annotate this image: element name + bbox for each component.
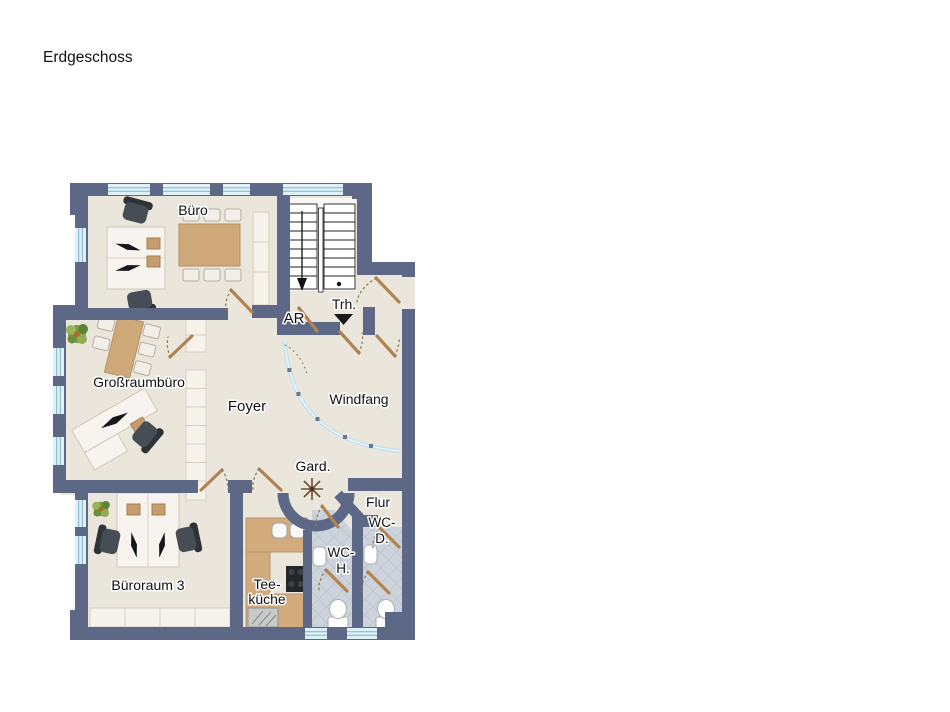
entrance-opening <box>402 277 415 309</box>
burner <box>298 569 304 575</box>
window <box>305 628 327 639</box>
room-label-flur: Flur <box>366 494 390 510</box>
room-label-teekueche-line1: Tee- <box>253 576 281 592</box>
floorplan-drawing: Erdgeschoss Büro Trh. AR Großraumbüro Fo… <box>0 0 950 712</box>
wall-right <box>402 262 415 640</box>
toilet <box>328 600 348 630</box>
chair <box>225 269 241 281</box>
page-title: Erdgeschoss <box>43 49 133 66</box>
window <box>75 536 86 564</box>
room-label-wc-h-line1: WC- <box>328 545 355 560</box>
wall-wch-west <box>303 530 312 628</box>
room-label-wc-d-line1: WC- <box>369 515 396 530</box>
wall-foyer-south-pier <box>228 480 252 493</box>
washbasin <box>313 547 326 566</box>
room-label-abstellraum: AR <box>284 310 305 327</box>
window <box>283 184 343 195</box>
room-label-treppenhaus: Trh. <box>332 296 356 312</box>
room-label-teekueche-line2: küche <box>248 591 286 607</box>
desk-container <box>147 238 160 249</box>
room-label-wc-h-line2: H. <box>336 561 350 576</box>
window <box>75 228 86 262</box>
window <box>163 184 210 195</box>
chair <box>183 269 199 281</box>
window <box>53 437 64 465</box>
wall-corner <box>385 612 415 640</box>
stair-handrail <box>319 208 324 292</box>
wall-teekueche-west <box>230 493 243 627</box>
desk-container <box>147 256 160 267</box>
burner <box>298 581 304 587</box>
wall-right-upper <box>357 183 372 275</box>
desk-container <box>127 504 140 515</box>
desk-container <box>152 504 165 515</box>
room-label-wc-d-line2: D. <box>375 531 389 546</box>
plant-icon <box>66 324 88 344</box>
room-label-garderobe: Gard. <box>295 458 330 474</box>
coatrack-center <box>310 487 315 492</box>
garderobe-coatrack <box>301 478 323 500</box>
conference-table <box>179 224 240 266</box>
floorplan-page: Erdgeschoss Büro Trh. AR Großraumbüro Fo… <box>0 0 950 712</box>
sink-bowl <box>272 523 287 538</box>
cabinet <box>253 212 269 305</box>
room-label-grossraumbuero: Großraumbüro <box>93 374 185 390</box>
washbasin <box>364 545 377 564</box>
window <box>347 628 377 639</box>
room-label-foyer: Foyer <box>228 398 266 415</box>
plant-icon <box>92 501 110 517</box>
wall-buero-south <box>66 308 228 320</box>
stair-newel-dot <box>337 282 341 286</box>
wall-flur-north <box>348 478 402 491</box>
wall-entry-stub <box>363 307 375 335</box>
chair <box>204 269 220 281</box>
burner <box>289 569 295 575</box>
window <box>223 184 250 195</box>
window <box>53 348 64 376</box>
window <box>108 184 150 195</box>
wall-wc-divider <box>352 525 363 628</box>
room-label-windfang: Windfang <box>329 391 388 407</box>
room-label-buero: Büro <box>178 202 208 218</box>
staircase <box>288 204 355 292</box>
window <box>53 386 64 414</box>
burner <box>289 581 295 587</box>
wall-foyer-south <box>53 480 198 493</box>
room-label-bueroraum3: Büroraum 3 <box>111 577 184 593</box>
window <box>75 500 86 527</box>
chair <box>225 209 241 221</box>
